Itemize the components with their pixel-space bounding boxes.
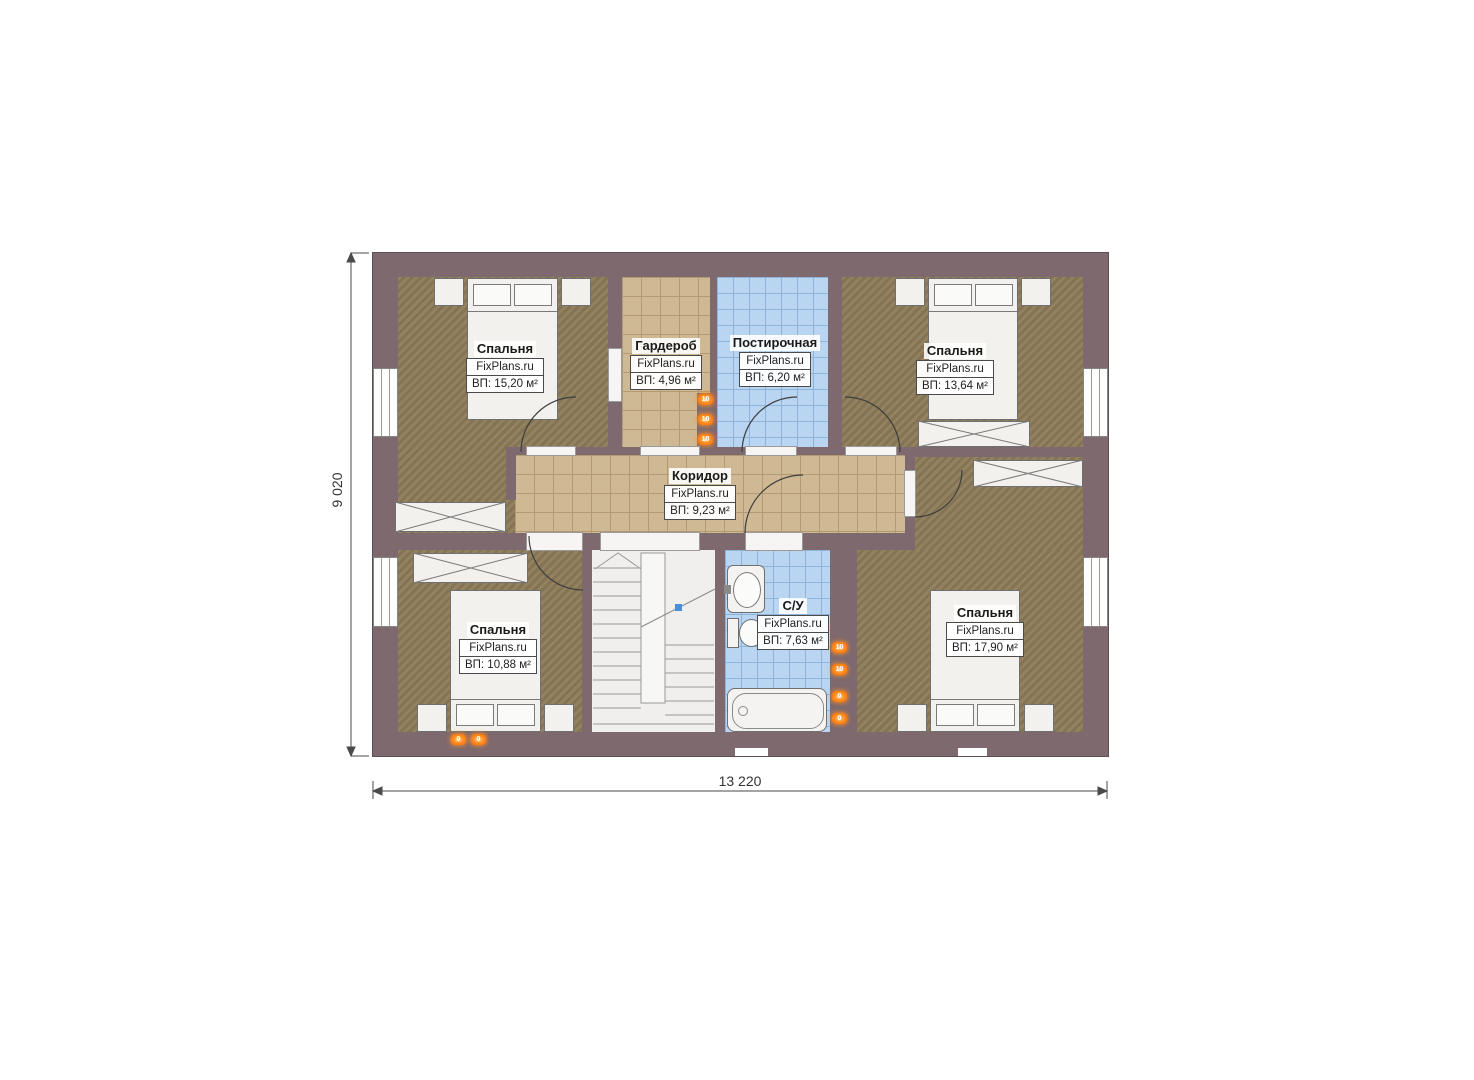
blanket-line: [931, 699, 1019, 700]
room-info-box: FixPlans.ru ВП: 6,20 м²: [739, 352, 811, 387]
pillow: [497, 704, 535, 726]
window-left-top: [373, 368, 398, 437]
room-area-label: ВП: 17,90 м²: [947, 640, 1023, 656]
blanket-line: [451, 699, 540, 700]
room-area-label: ВП: 15,20 м²: [467, 376, 543, 392]
socket-icon: 0: [832, 713, 847, 724]
staircase-floor: [592, 550, 715, 732]
room-name: С/У: [779, 598, 806, 614]
socket-icon: 10: [698, 394, 713, 405]
room-area-label: ВП: 13,64 м²: [917, 378, 993, 394]
room-name: Постирочная: [730, 335, 820, 351]
nightstand: [417, 704, 447, 732]
floor-plan-canvas: 10 10 10 10 10 0 0 0 0 Спальня FixPlans.…: [0, 0, 1474, 1080]
closet-bedroom-bottom-right: [973, 460, 1083, 487]
door-threshold-bedroom-top-left: [526, 446, 576, 456]
pillow: [934, 284, 972, 306]
wall-stairs-bathroom: [715, 550, 725, 732]
brand-label: FixPlans.ru: [947, 623, 1023, 640]
wall-notch-bottom-2: [958, 748, 987, 756]
room-info-box: FixPlans.ru ВП: 15,20 м²: [466, 358, 544, 393]
room-info-box: FixPlans.ru ВП: 7,63 м²: [757, 615, 829, 650]
room-info-box: FixPlans.ru ВП: 4,96 м²: [630, 355, 702, 390]
pillow: [514, 284, 552, 306]
room-info-box: FixPlans.ru ВП: 13,64 м²: [916, 360, 994, 395]
wall-bedrooms-right-divider: [905, 447, 1083, 457]
brand-label: FixPlans.ru: [758, 616, 828, 633]
door-threshold-bedroom-top-right: [845, 446, 897, 456]
room-info-box: FixPlans.ru ВП: 10,88 м²: [459, 639, 537, 674]
bathtub-drain: [738, 706, 748, 716]
nightstand: [434, 278, 464, 306]
brand-label: FixPlans.ru: [917, 361, 993, 378]
pillow: [977, 704, 1015, 726]
room-label-bedroom-top-left: Спальня FixPlans.ru ВП: 15,20 м²: [435, 341, 575, 393]
window-right-top: [1083, 368, 1108, 437]
room-area-label: ВП: 7,63 м²: [758, 633, 828, 649]
door-threshold-laundry: [745, 446, 797, 456]
wall-bedroom-stairs: [582, 550, 592, 732]
wall-corridor-left-stub: [506, 447, 516, 500]
closet-bedroom-bottom-left: [413, 553, 528, 583]
room-name: Спальня: [924, 343, 986, 359]
dimension-width-label: 13 220: [700, 773, 780, 789]
room-name: Спальня: [467, 622, 529, 638]
socket-icon: 10: [698, 434, 713, 445]
door-threshold-bathroom: [745, 532, 803, 551]
brand-label: FixPlans.ru: [665, 486, 735, 503]
room-label-wardrobe: Гардероб FixPlans.ru ВП: 4,96 м²: [606, 338, 726, 390]
socket-icon: 10: [832, 642, 847, 653]
room-name: Гардероб: [632, 338, 699, 354]
room-info-box: FixPlans.ru ВП: 17,90 м²: [946, 622, 1024, 657]
window-right-bottom: [1083, 557, 1108, 627]
nightstand: [561, 278, 591, 306]
room-label-bedroom-top-right: Спальня FixPlans.ru ВП: 13,64 м²: [885, 343, 1025, 395]
room-name: Спальня: [474, 341, 536, 357]
room-label-bedroom-bottom-right: Спальня FixPlans.ru ВП: 17,90 м²: [915, 605, 1055, 657]
closet-bedroom-top-left: [395, 502, 506, 532]
room-label-laundry: Постирочная FixPlans.ru ВП: 6,20 м²: [710, 335, 840, 387]
pillow: [456, 704, 494, 726]
room-label-bedroom-bottom-left: Спальня FixPlans.ru ВП: 10,88 м²: [428, 622, 568, 674]
nightstand: [544, 704, 574, 732]
room-name: Коридор: [669, 468, 731, 484]
socket-icon: 10: [698, 414, 713, 425]
brand-label: FixPlans.ru: [460, 640, 536, 657]
door-threshold-bedroom-bottom-right: [904, 470, 916, 517]
wall-notch-bottom-1: [735, 748, 768, 756]
blanket-line: [468, 311, 557, 312]
pillow: [473, 284, 511, 306]
closet-bedroom-top-right: [918, 421, 1030, 447]
socket-icon: 0: [832, 691, 847, 702]
brand-label: FixPlans.ru: [467, 359, 543, 376]
nightstand: [1024, 704, 1054, 732]
door-threshold-bedroom-bottom-left: [526, 532, 583, 551]
nightstand: [897, 704, 927, 732]
bathtub-icon: [727, 688, 827, 732]
brand-label: FixPlans.ru: [631, 356, 701, 373]
socket-icon: 10: [832, 664, 847, 675]
pillow: [936, 704, 974, 726]
door-threshold-wardrobe: [640, 446, 700, 456]
floor-plan: 10 10 10 10 10 0 0 0 0 Спальня FixPlans.…: [373, 253, 1108, 756]
nightstand: [1021, 278, 1051, 306]
room-info-box: FixPlans.ru ВП: 9,23 м²: [664, 485, 736, 520]
room-area-label: ВП: 10,88 м²: [460, 657, 536, 673]
window-left-bottom: [373, 557, 398, 627]
socket-icon: 0: [451, 734, 466, 745]
pillow: [975, 284, 1013, 306]
sink-tap: [724, 585, 731, 594]
room-name: Спальня: [954, 605, 1016, 621]
room-area-label: ВП: 9,23 м²: [665, 503, 735, 519]
room-label-corridor: Коридор FixPlans.ru ВП: 9,23 м²: [630, 468, 770, 520]
blanket-line: [929, 311, 1017, 312]
socket-icon: 0: [471, 734, 486, 745]
nightstand: [895, 278, 925, 306]
opening-stairs: [600, 532, 700, 551]
room-area-label: ВП: 4,96 м²: [631, 373, 701, 389]
room-area-label: ВП: 6,20 м²: [740, 370, 810, 386]
dimension-height-label: 9 020: [329, 455, 345, 525]
brand-label: FixPlans.ru: [740, 353, 810, 370]
